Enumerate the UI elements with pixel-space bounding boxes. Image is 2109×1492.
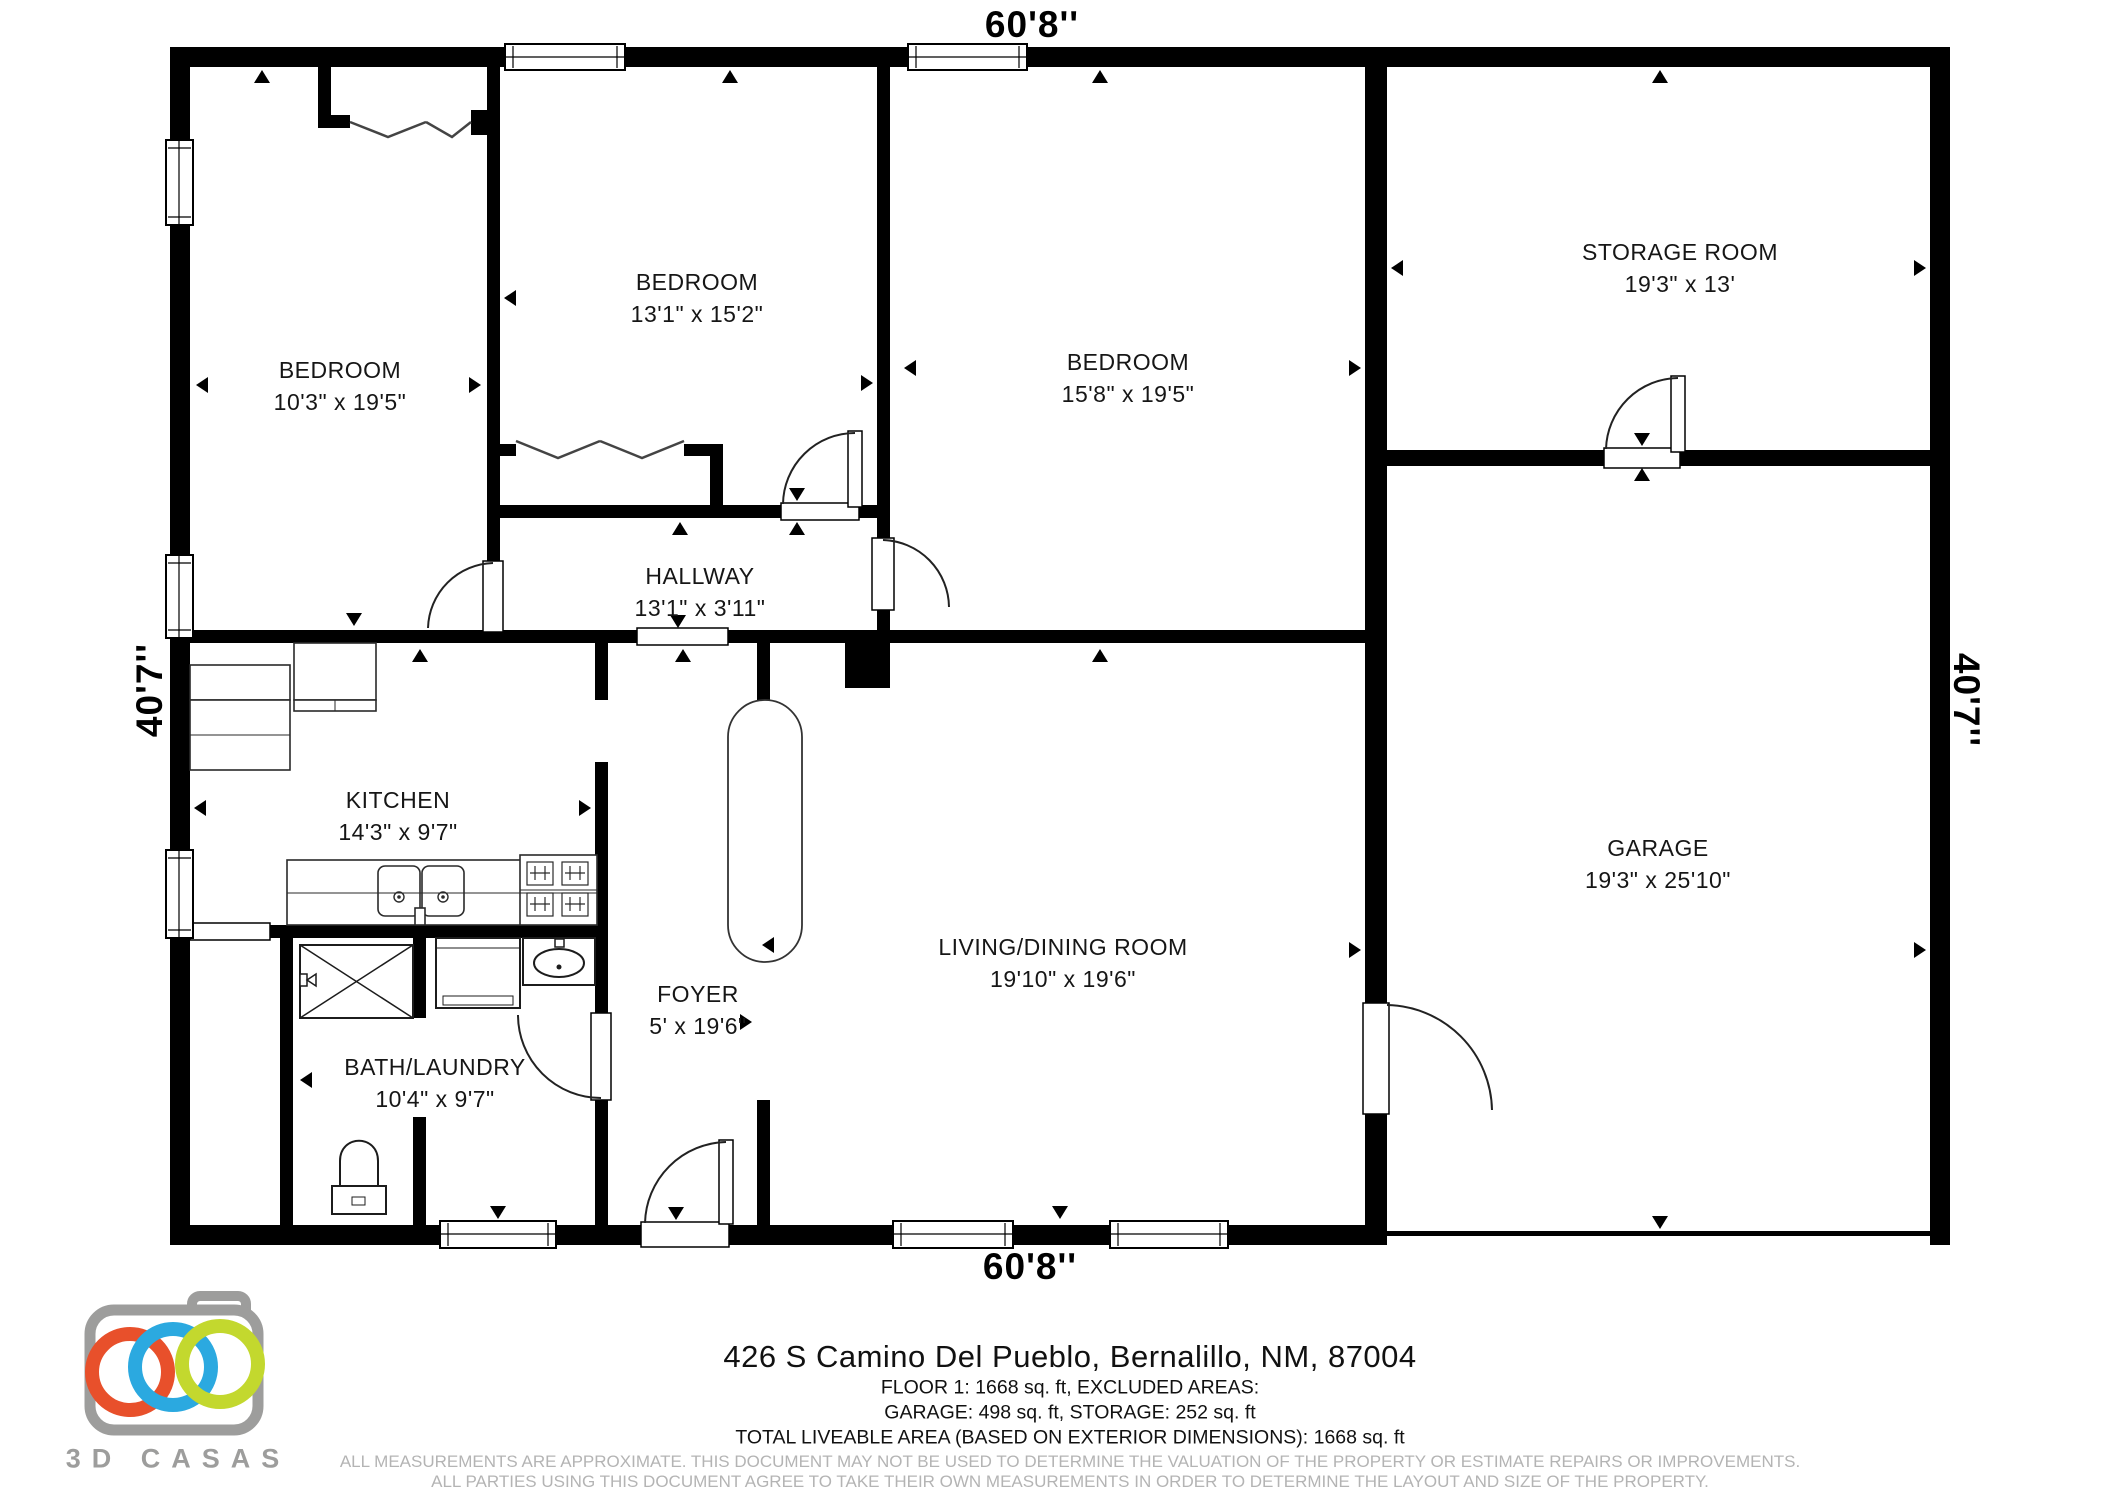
corner-post xyxy=(845,643,890,688)
room-dims: 15'8" x 19'5" xyxy=(1062,378,1195,410)
wall-closet-bath xyxy=(280,938,293,1225)
closet2-left-stub xyxy=(487,444,516,456)
foyer-stadium-fixture xyxy=(728,700,802,962)
arrow-left-icon xyxy=(904,360,916,376)
room-dims: 13'1" x 3'11" xyxy=(635,592,766,624)
wall-bed1-hallway xyxy=(487,518,500,563)
kitchen-faucet-icon xyxy=(415,908,425,925)
disclaimer-line-1: ALL MEASUREMENTS ARE APPROXIMATE. THIS D… xyxy=(340,1452,1800,1472)
kitchen-sink-icon xyxy=(378,866,420,916)
arrow-down-icon xyxy=(1652,1216,1668,1229)
arrow-down-icon xyxy=(789,488,805,501)
wall-main-horizontal xyxy=(170,630,1387,643)
corner-cabinet-icon xyxy=(294,643,376,700)
door-swings xyxy=(428,378,1678,1223)
room-name: BEDROOM xyxy=(274,354,407,386)
arrow-left-icon xyxy=(194,800,206,816)
toilet-icon xyxy=(332,1141,386,1214)
area-summary-line-2: GARAGE: 498 sq. ft, STORAGE: 252 sq. ft xyxy=(884,1402,1255,1425)
wall-kitchen-foyer-stub xyxy=(595,643,608,700)
room-dims: 14'3" x 9'7" xyxy=(338,816,457,848)
arrow-down-icon xyxy=(1052,1206,1068,1219)
room-name: BEDROOM xyxy=(1062,346,1195,378)
arrow-down-icon xyxy=(490,1206,506,1219)
wall-living-garage-lower xyxy=(1365,1112,1387,1225)
dimension-top: 60'8'' xyxy=(985,4,1079,46)
room-dims: 19'10" x 19'6" xyxy=(938,963,1187,995)
threshold-kitchen-closet xyxy=(190,923,270,940)
threshold-hallway-foyer xyxy=(637,628,728,645)
room-name: KITCHEN xyxy=(338,784,457,816)
room-label-bedroom-3: BEDROOM 15'8" x 19'5" xyxy=(1062,346,1195,410)
property-address: 426 S Camino Del Pueblo, Bernalillo, NM,… xyxy=(723,1339,1416,1375)
arrow-up-icon xyxy=(412,649,428,662)
arrow-up-icon xyxy=(672,522,688,535)
area-summary-line-3: TOTAL LIVEABLE AREA (BASED ON EXTERIOR D… xyxy=(735,1427,1404,1450)
threshold-front-door xyxy=(641,1222,729,1247)
arrow-right-icon xyxy=(579,800,591,816)
garage-door-opening-line xyxy=(1387,1231,1930,1236)
wall-foyer-living-stub xyxy=(757,643,770,700)
dimension-bottom: 60'8'' xyxy=(983,1246,1077,1288)
area-summary-line-1: FLOOR 1: 1668 sq. ft, EXCLUDED AREAS: xyxy=(881,1377,1259,1400)
fridge-icon xyxy=(190,665,290,700)
wall-exterior-left xyxy=(170,47,190,1245)
door-leaf-bed3 xyxy=(872,538,894,610)
room-dims: 19'3" x 25'10" xyxy=(1585,864,1731,896)
closet1-wall-foot xyxy=(318,115,350,128)
arrow-up-icon xyxy=(254,70,270,83)
door-arc-bath xyxy=(518,1015,601,1098)
wall-hallway-bed3 xyxy=(877,608,890,633)
door-leaf-garage xyxy=(1363,1003,1389,1114)
wall-living-garage-upper xyxy=(1365,67,1387,1005)
room-label-storage: STORAGE ROOM 19'3" x 13' xyxy=(1582,236,1778,300)
bifold-closet1-right xyxy=(426,122,471,137)
wall-bed2-bed3 xyxy=(877,67,890,540)
arrow-up-icon xyxy=(1092,70,1108,83)
logo-camera-icon xyxy=(90,1296,258,1430)
arrow-right-icon xyxy=(861,375,873,391)
room-dims: 5' x 19'6" xyxy=(649,1010,746,1042)
arrow-down-icon xyxy=(346,613,362,626)
room-dims: 19'3" x 13' xyxy=(1582,268,1778,300)
room-name: STORAGE ROOM xyxy=(1582,236,1778,268)
room-label-bath-laundry: BATH/LAUNDRY 10'4" x 9'7" xyxy=(344,1051,526,1115)
closet2-right-wall xyxy=(710,444,723,518)
wall-exterior-right xyxy=(1930,47,1950,1245)
room-label-hallway: HALLWAY 13'1" x 3'11" xyxy=(635,560,766,624)
arrow-up-icon xyxy=(1634,468,1650,481)
threshold-storage-door xyxy=(1604,448,1680,468)
wall-bath-foyer-lower xyxy=(595,1098,608,1225)
arrow-down-icon xyxy=(1634,433,1650,446)
room-name: LIVING/DINING ROOM xyxy=(938,931,1187,963)
arrow-up-icon xyxy=(722,70,738,83)
room-dims: 10'3" x 19'5" xyxy=(274,386,407,418)
room-dims: 13'1" x 15'2" xyxy=(631,298,764,330)
room-label-living-dining: LIVING/DINING ROOM 19'10" x 19'6" xyxy=(938,931,1187,995)
door-leaf-bath xyxy=(591,1013,611,1100)
floor-plan: BEDROOM 10'3" x 19'5" BEDROOM 13'1" x 15… xyxy=(0,0,2109,1491)
room-name: HALLWAY xyxy=(635,560,766,592)
arrow-up-icon xyxy=(1092,649,1108,662)
room-name: GARAGE xyxy=(1585,832,1731,864)
bifold-closet2-right xyxy=(600,441,684,458)
room-dims: 10'4" x 9'7" xyxy=(344,1083,526,1115)
room-label-garage: GARAGE 19'3" x 25'10" xyxy=(1585,832,1731,896)
dimension-right: 40'7'' xyxy=(1945,653,1987,747)
arrow-up-icon xyxy=(1652,70,1668,83)
door-leaf-front xyxy=(719,1140,733,1224)
wall-wc-stub xyxy=(413,1117,426,1225)
wall-bath-foyer-upper xyxy=(595,925,608,1015)
room-label-bedroom-1: BEDROOM 10'3" x 19'5" xyxy=(274,354,407,418)
door-arc-front xyxy=(645,1142,726,1223)
arrow-left-icon xyxy=(504,290,516,306)
arrow-right-icon xyxy=(1349,360,1361,376)
wall-exterior-top xyxy=(170,47,1950,67)
disclaimer-line-2: ALL PARTIES USING THIS DOCUMENT AGREE TO… xyxy=(431,1472,1709,1492)
arrow-left-icon xyxy=(1391,260,1403,276)
arrow-down-icon xyxy=(668,1207,684,1220)
door-leaf-bed1 xyxy=(483,561,503,632)
door-arc-garage xyxy=(1387,1005,1492,1110)
bifold-closet1-left xyxy=(350,122,426,137)
arrow-left-icon xyxy=(196,377,208,393)
arrow-right-icon xyxy=(1914,260,1926,276)
arrow-up-icon xyxy=(789,522,805,535)
room-name: FOYER xyxy=(649,978,746,1010)
logo-text: 3D CASAS xyxy=(66,1444,291,1475)
closet1-stub xyxy=(471,110,487,135)
arrow-right-icon xyxy=(1349,942,1361,958)
arrow-right-icon xyxy=(1914,942,1926,958)
bifold-closet2-left xyxy=(516,441,600,458)
room-label-foyer: FOYER 5' x 19'6" xyxy=(649,978,746,1042)
arrow-left-icon xyxy=(300,1072,312,1088)
arrow-up-icon xyxy=(675,649,691,662)
room-name: BATH/LAUNDRY xyxy=(344,1051,526,1083)
room-label-bedroom-2: BEDROOM 13'1" x 15'2" xyxy=(631,266,764,330)
dimension-left: 40'7'' xyxy=(129,643,171,737)
room-name: BEDROOM xyxy=(631,266,764,298)
door-leaf-bed2 xyxy=(848,431,862,507)
arrow-right-icon xyxy=(469,377,481,393)
door-leaf-storage xyxy=(1671,376,1685,452)
bathroom-sink-icon xyxy=(534,949,584,977)
wall-foyer-living-lower xyxy=(757,1100,770,1225)
wall-shower-stub xyxy=(413,938,426,1018)
room-label-kitchen: KITCHEN 14'3" x 9'7" xyxy=(338,784,457,848)
